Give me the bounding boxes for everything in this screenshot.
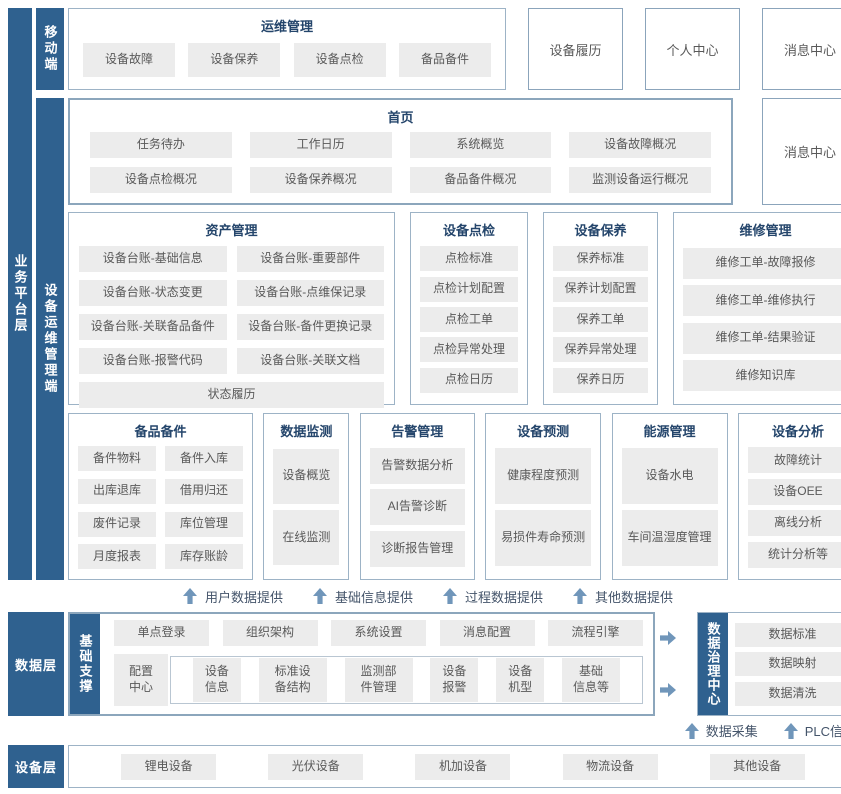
box-title: 设备保养 — [544, 213, 657, 239]
box-title: 告警管理 — [361, 414, 474, 440]
module-item: 其他设备 — [710, 754, 805, 780]
module-item: 设备台账-关联文档 — [237, 348, 385, 374]
module-item: 机加设备 — [415, 754, 510, 780]
provide-label: 基础信息提供 — [313, 587, 443, 606]
module-item: 配置 中心 — [114, 654, 168, 706]
module-item: 设备台账-报警代码 — [79, 348, 227, 374]
config-sub-box: 设备 信息 标准设 备结构 监测部 件管理 设备 报警 设备 机型 基础 信息等 — [170, 656, 643, 704]
module-item: 库位管理 — [165, 512, 243, 537]
module-item: 库存账龄 — [165, 544, 243, 569]
box-data-governance-center: 数据治理中心 数据标准 数据映射 数据清洗 — [697, 612, 841, 716]
module-item: 维修工单-结果验证 — [683, 323, 841, 354]
right-arrow-icon — [660, 683, 676, 697]
module-item: 设备OEE — [748, 479, 841, 505]
provide-label: 用户数据提供 — [183, 587, 313, 606]
box-title: 设备点检 — [411, 213, 527, 239]
box-equipment-maintenance: 设备保养 保养标准 保养计划配置 保养工单 保养异常处理 保养日历 — [543, 212, 658, 405]
box-ops-management: 运维管理 设备故障 设备保养 设备点检 备品备件 — [68, 8, 506, 90]
rail-data-layer: 数据层 — [8, 612, 64, 716]
right-arrow-icon — [660, 631, 676, 645]
box-title: 备品备件 — [69, 414, 252, 440]
module-item: 点检计划配置 — [420, 277, 518, 302]
up-arrow-icon — [313, 588, 327, 604]
up-arrow-icon — [685, 723, 699, 739]
box-title: 设备预测 — [486, 414, 600, 440]
feed-text: PLC信号 — [805, 721, 841, 740]
module-item: 设备水电 — [622, 448, 718, 504]
module-item: 离线分析 — [748, 510, 841, 536]
module-item: 保养计划配置 — [553, 277, 648, 302]
box-message-center: 消息中心 — [762, 8, 841, 90]
module-item: 出库退库 — [78, 479, 156, 504]
module-item: 车间温湿度管理 — [622, 510, 718, 566]
box-title: 资产管理 — [69, 213, 394, 239]
module-item: 基础 信息等 — [562, 658, 620, 702]
home-section: 首页 任务待办 工作日历 系统概览 设备故障概况 设备点检概况 设备保养概况 备… — [68, 98, 841, 205]
module-item: 锂电设备 — [121, 754, 216, 780]
data-layer-section: 基础支撑 单点登录 组织架构 系统设置 消息配置 流程引擎 配置 中心 — [68, 612, 841, 716]
module-item: 设备台账-备件更换记录 — [237, 314, 385, 340]
provide-text: 过程数据提供 — [465, 587, 543, 606]
data-governance-label: 数据治理中心 — [698, 613, 728, 715]
module-item: 维修知识库 — [683, 360, 841, 391]
module-item: 维修工单-故障报修 — [683, 248, 841, 279]
module-item: 备件物料 — [78, 446, 156, 471]
module-item: 月度报表 — [78, 544, 156, 569]
data-provides-row: 用户数据提供 基础信息提供 过程数据提供 其他数据提供 — [68, 580, 841, 612]
box-home: 首页 任务待办 工作日历 系统概览 设备故障概况 设备点检概况 设备保养概况 备… — [68, 98, 733, 205]
module-item: 单点登录 — [114, 620, 209, 646]
main-content: 运维管理 设备故障 设备保养 设备点检 备品备件 设备履历 个人中心 消息中心 … — [68, 8, 841, 788]
feed-text: 数据采集 — [706, 721, 758, 740]
module-item: 易损件寿命预测 — [495, 510, 591, 566]
module-item: 流程引擎 — [548, 620, 643, 646]
box-title: 设备分析 — [739, 414, 841, 440]
module-item: 保养日历 — [553, 368, 648, 393]
module-item: 设备 信息 — [193, 658, 241, 702]
mobile-section: 运维管理 设备故障 设备保养 设备点检 备品备件 设备履历 个人中心 消息中心 — [68, 8, 841, 90]
data-feeds-row: 数据采集 PLC信号 — [68, 716, 841, 745]
module-item: 维修工单-维修执行 — [683, 285, 841, 316]
box-asset-management: 资产管理 设备台账-基础信息 设备台账-重要部件 设备台账-状态变更 设备台账-… — [68, 212, 395, 405]
module-item: 工作日历 — [250, 132, 392, 158]
box-repair-management: 维修管理 维修工单-故障报修 维修工单-维修执行 维修工单-结果验证 维修知识库 — [673, 212, 841, 405]
module-item: 告警数据分析 — [370, 448, 465, 484]
rail-equipment-ops-client: 设备运维管理端 — [36, 98, 64, 580]
module-item: 诊断报告管理 — [370, 531, 465, 567]
module-item: 系统概览 — [410, 132, 552, 158]
module-item: 设备保养概况 — [250, 167, 392, 193]
provide-text: 基础信息提供 — [335, 587, 413, 606]
up-arrow-icon — [573, 588, 587, 604]
provide-text: 用户数据提供 — [205, 587, 283, 606]
box-title: 首页 — [70, 100, 731, 126]
module-item: 标准设 备结构 — [259, 658, 327, 702]
box-equipment-prediction: 设备预测 健康程度预测 易损件寿命预测 — [485, 413, 601, 580]
modules-row-2: 备品备件 备件物料 备件入库 出库退库 借用归还 废件记录 库位管理 月度报表 … — [68, 413, 841, 580]
module-item: 备品备件 — [399, 43, 491, 77]
basic-support-label: 基础支撑 — [70, 614, 100, 714]
box-message-center: 消息中心 — [762, 98, 841, 205]
module-item: 设备 报警 — [430, 658, 478, 702]
module-item: 监测设备运行概况 — [569, 167, 711, 193]
module-item: 保养异常处理 — [553, 337, 648, 362]
up-arrow-icon — [443, 588, 457, 604]
provide-label: 过程数据提供 — [443, 587, 573, 606]
module-item: 点检工单 — [420, 307, 518, 332]
module-item: 废件记录 — [78, 512, 156, 537]
module-item: 消息配置 — [440, 620, 535, 646]
module-item: 备品备件概况 — [410, 167, 552, 193]
layer-rail: 业务平台层 移动端 设备运维管理端 数据层 设备层 — [8, 8, 64, 788]
module-item: 光伏设备 — [268, 754, 363, 780]
module-item: 设备台账-基础信息 — [79, 246, 227, 272]
up-arrow-icon — [784, 723, 798, 739]
module-item: 设备台账-重要部件 — [237, 246, 385, 272]
module-item: 系统设置 — [331, 620, 426, 646]
module-item: 监测部 件管理 — [345, 658, 413, 702]
provide-label: 其他数据提供 — [573, 587, 703, 606]
module-item: 设备概览 — [273, 449, 339, 504]
feed-label: 数据采集 — [685, 721, 758, 740]
feed-label: PLC信号 — [784, 721, 841, 740]
module-item: AI告警诊断 — [370, 489, 465, 525]
module-item: 设备台账-点维保记录 — [237, 280, 385, 306]
module-item: 点检日历 — [420, 368, 518, 393]
box-data-monitoring: 数据监测 设备概览 在线监测 — [263, 413, 349, 580]
module-item: 状态履历 — [79, 382, 384, 408]
module-item: 设备保养 — [188, 43, 280, 77]
architecture-diagram: 业务平台层 移动端 设备运维管理端 数据层 设备层 运维管理 设备故障 设备保养… — [0, 0, 841, 794]
module-item: 保养标准 — [553, 246, 648, 271]
device-layer-box: 锂电设备 光伏设备 机加设备 物流设备 其他设备 — [68, 745, 841, 788]
module-item: 借用归还 — [165, 479, 243, 504]
modules-row-1: 资产管理 设备台账-基础信息 设备台账-重要部件 设备台账-状态变更 设备台账-… — [68, 212, 841, 405]
module-item: 数据清洗 — [735, 682, 841, 706]
box-equipment-analysis: 设备分析 故障统计 设备OEE 离线分析 统计分析等 — [738, 413, 841, 580]
rail-mobile-client: 移动端 — [36, 8, 64, 90]
flow-arrows — [657, 612, 679, 716]
module-item: 保养工单 — [553, 307, 648, 332]
module-item: 设备 机型 — [496, 658, 544, 702]
module-item: 设备点检概况 — [90, 167, 232, 193]
box-energy-management: 能源管理 设备水电 车间温湿度管理 — [612, 413, 728, 580]
module-item: 物流设备 — [563, 754, 658, 780]
provide-text: 其他数据提供 — [595, 587, 673, 606]
rail-device-layer: 设备层 — [8, 745, 64, 788]
box-title: 运维管理 — [69, 9, 505, 35]
module-item: 设备故障概况 — [569, 132, 711, 158]
module-item: 设备台账-关联备品备件 — [79, 314, 227, 340]
box-spare-parts: 备品备件 备件物料 备件入库 出库退库 借用归还 废件记录 库位管理 月度报表 … — [68, 413, 253, 580]
module-item: 组织架构 — [223, 620, 318, 646]
module-item: 在线监测 — [273, 510, 339, 565]
up-arrow-icon — [183, 588, 197, 604]
box-equipment-inspection: 设备点检 点检标准 点检计划配置 点检工单 点检异常处理 点检日历 — [410, 212, 528, 405]
box-personal-center: 个人中心 — [645, 8, 740, 90]
module-item: 任务待办 — [90, 132, 232, 158]
box-equipment-history: 设备履历 — [528, 8, 623, 90]
box-title: 能源管理 — [613, 414, 727, 440]
module-item: 数据映射 — [735, 652, 841, 676]
box-title: 维修管理 — [674, 213, 841, 239]
module-item: 设备点检 — [294, 43, 386, 77]
module-item: 点检异常处理 — [420, 337, 518, 362]
module-item: 备件入库 — [165, 446, 243, 471]
module-item: 数据标准 — [735, 623, 841, 647]
box-alarm-management: 告警管理 告警数据分析 AI告警诊断 诊断报告管理 — [360, 413, 475, 580]
box-title: 数据监测 — [264, 414, 348, 440]
module-item: 统计分析等 — [748, 542, 841, 568]
module-item: 健康程度预测 — [495, 448, 591, 504]
module-item: 设备台账-状态变更 — [79, 280, 227, 306]
box-basic-support: 基础支撑 单点登录 组织架构 系统设置 消息配置 流程引擎 配置 中心 — [68, 612, 655, 716]
module-item: 故障统计 — [748, 447, 841, 473]
module-item: 点检标准 — [420, 246, 518, 271]
rail-business-platform-layer: 业务平台层 — [8, 8, 32, 580]
module-item: 设备故障 — [83, 43, 175, 77]
